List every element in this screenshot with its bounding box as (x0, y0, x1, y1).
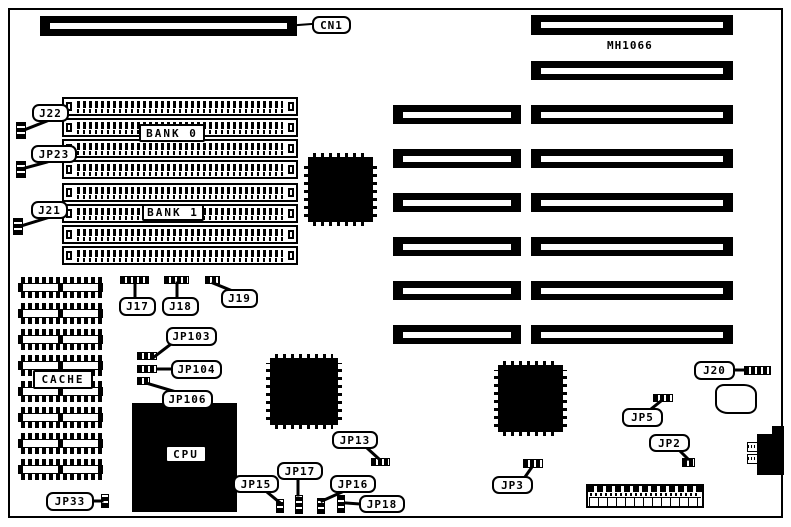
jp33-label: JP33 (46, 492, 94, 511)
jp5-label: JP5 (622, 408, 663, 427)
cpu-label: CPU (166, 446, 206, 462)
jp106-label: JP106 (162, 390, 213, 409)
jp17-label: JP17 (277, 462, 323, 480)
jp104-label-text: JP104 (177, 363, 215, 376)
cache-label: CACHE (33, 370, 93, 389)
j17-label-text: J17 (126, 300, 149, 313)
bank0-label-text: BANK 0 (146, 127, 198, 140)
j22-label: J22 (32, 104, 69, 122)
leader-cn1 (298, 24, 312, 25)
jp3-label: JP3 (492, 476, 533, 494)
jp13-label-text: JP13 (340, 434, 371, 447)
cpu-label-text: CPU (173, 448, 199, 461)
jp103-label-text: JP103 (172, 330, 210, 343)
jp23-label-text: JP23 (39, 148, 70, 161)
jp5-label-text: JP5 (631, 411, 654, 424)
leader-j22 (24, 121, 47, 130)
j21-label-text: J21 (38, 204, 61, 217)
jp18-label-text: JP18 (367, 498, 398, 511)
jp33-label-text: JP33 (55, 495, 86, 508)
j22-label-text: J22 (39, 107, 62, 120)
leader-jp18 (346, 503, 360, 504)
j18-label-text: J18 (169, 300, 192, 313)
bank0-label: BANK 0 (139, 124, 205, 142)
bank1-label-text: BANK 1 (147, 206, 199, 219)
leader-jp13 (367, 448, 379, 459)
jp18-label: JP18 (359, 495, 405, 513)
j17-label: J17 (119, 297, 156, 316)
bank1-label: BANK 1 (142, 204, 204, 221)
j19-label: J19 (221, 289, 258, 308)
jp106-label-text: JP106 (168, 393, 206, 406)
leader-j21 (21, 218, 47, 226)
leader-jp103 (154, 344, 171, 357)
cn1-label-text: CN1 (320, 19, 343, 32)
j18-label: J18 (162, 297, 199, 316)
cn1-label: CN1 (312, 16, 351, 34)
motherboard-diagram: CN1 MH1066 BANK 0 BANK 1 J22 JP23 J21 CA… (0, 0, 791, 527)
jp2-label-text: JP2 (658, 437, 681, 450)
jp23-label: JP23 (31, 145, 77, 163)
j20-label-text: J20 (703, 364, 726, 377)
j19-label-text: J19 (228, 292, 251, 305)
jp15-label: JP15 (233, 475, 279, 493)
j21-label: J21 (31, 201, 68, 219)
jp17-label-text: JP17 (285, 465, 316, 478)
jp13-label: JP13 (332, 431, 378, 449)
jp16-label: JP16 (330, 475, 376, 493)
j20-label: J20 (694, 361, 735, 380)
leader-jp2 (680, 451, 688, 459)
jp103-label: JP103 (166, 327, 217, 346)
jp2-label: JP2 (649, 434, 690, 452)
jp15-label-text: JP15 (241, 478, 272, 491)
jp104-label: JP104 (171, 360, 222, 379)
leader-jp15 (267, 492, 279, 502)
jp16-label-text: JP16 (338, 478, 369, 491)
jp3-label-text: JP3 (501, 479, 524, 492)
leader-jp16 (322, 492, 342, 501)
cache-label-text: CACHE (41, 373, 84, 386)
